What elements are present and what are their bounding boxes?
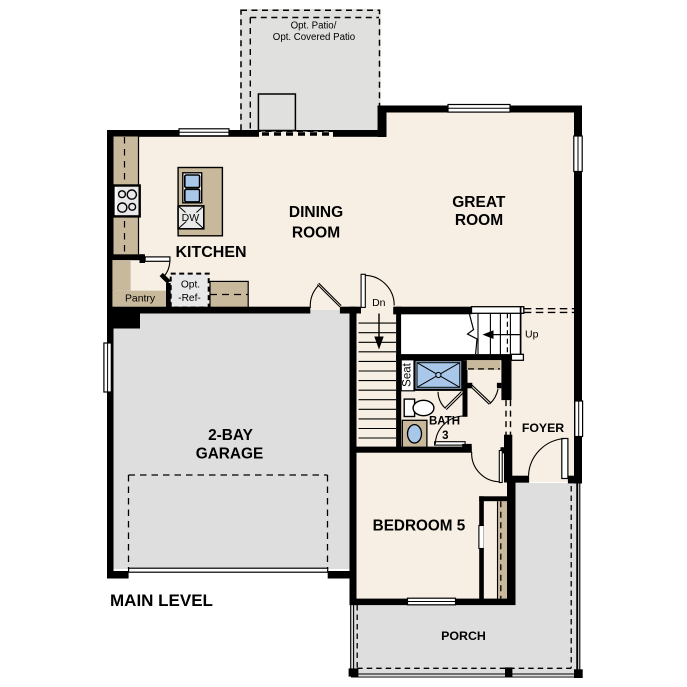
svg-text:Opt. Patio/: Opt. Patio/ (291, 21, 337, 32)
svg-text:Seat: Seat (402, 362, 414, 386)
svg-text:DW: DW (182, 212, 200, 224)
svg-text:Opt.: Opt. (181, 280, 200, 291)
svg-text:KITCHEN: KITCHEN (175, 244, 246, 261)
svg-text:-Ref-: -Ref- (178, 293, 201, 304)
svg-text:Dn: Dn (372, 297, 386, 309)
svg-text:Pantry: Pantry (125, 293, 156, 304)
svg-text:Up: Up (525, 329, 539, 341)
svg-text:BEDROOM 5: BEDROOM 5 (373, 517, 466, 534)
svg-text:PORCH: PORCH (441, 629, 486, 643)
svg-text:Opt. Covered Patio: Opt. Covered Patio (273, 32, 355, 43)
svg-text:MAIN LEVEL: MAIN LEVEL (110, 591, 213, 610)
svg-text:GREAT: GREAT (452, 194, 506, 211)
svg-text:ROOM: ROOM (292, 224, 340, 241)
svg-text:DINING: DINING (289, 204, 343, 221)
svg-text:FOYER: FOYER (522, 421, 564, 435)
svg-text:3: 3 (442, 430, 448, 442)
svg-text:2-BAY: 2-BAY (208, 427, 254, 444)
svg-text:GARAGE: GARAGE (196, 446, 264, 463)
svg-text:ROOM: ROOM (455, 212, 503, 229)
